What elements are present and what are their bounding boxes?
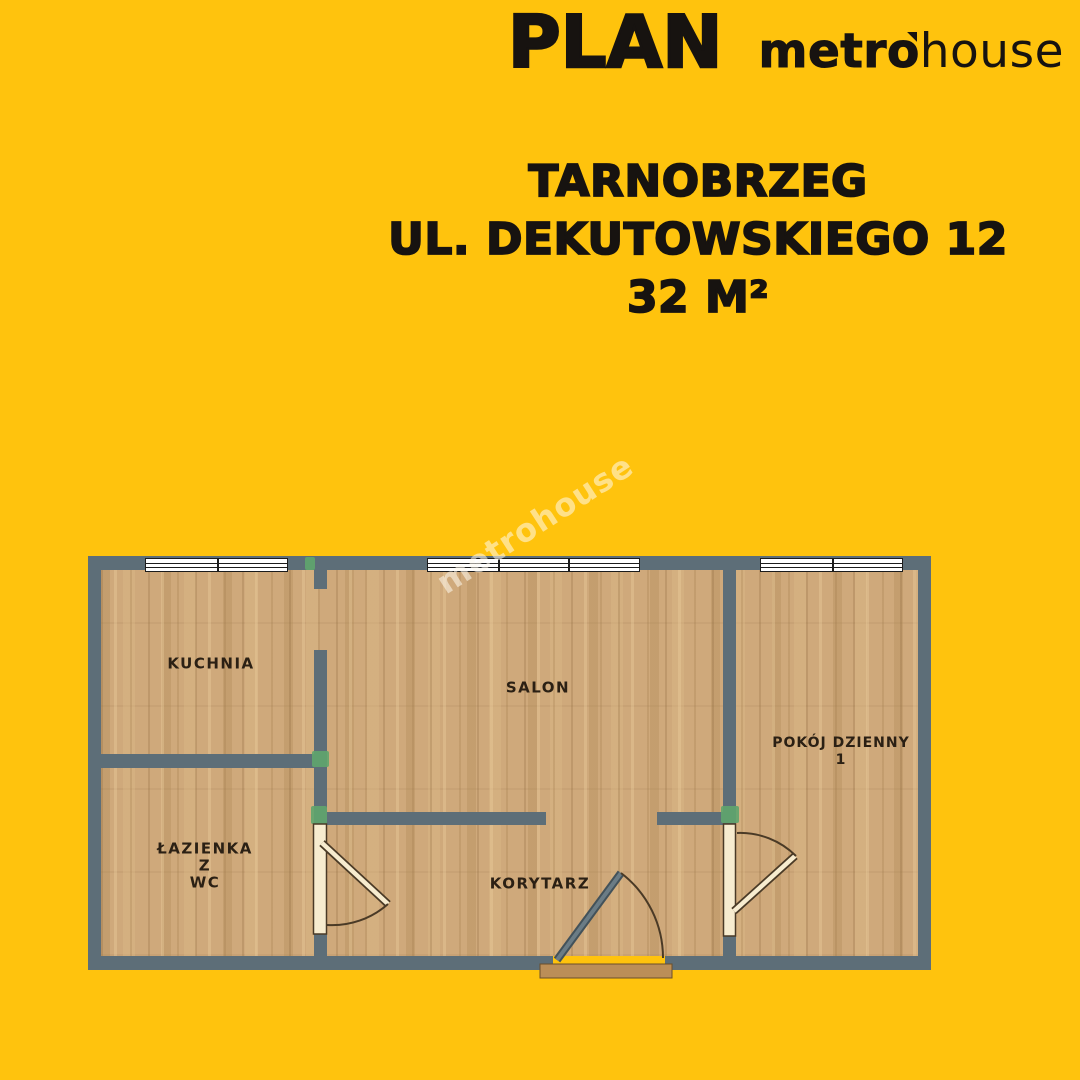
wall-bathroom-corridor-lower xyxy=(314,934,327,958)
lazienka-line2: Z xyxy=(157,858,253,875)
wall-kitchen-bathroom xyxy=(101,754,314,768)
window-divider xyxy=(832,559,834,571)
wall-outer-bottom-right xyxy=(665,956,931,970)
wall-kitchen-salon xyxy=(314,650,327,824)
junction-mark xyxy=(721,806,739,823)
pokoj-label-number: 1 xyxy=(772,752,909,769)
lazienka-line1: ŁAZIENKA xyxy=(157,841,253,858)
junction-mark xyxy=(311,806,327,824)
lazienka-line3: WC xyxy=(157,875,253,892)
wall-salon-corridor-left xyxy=(327,812,546,825)
wall-outer-right xyxy=(918,556,931,970)
room-label-pokoj-dzienny: POKÓJ DZIENNY 1 xyxy=(772,735,909,769)
room-label-korytarz: KORYTARZ xyxy=(490,876,590,893)
wall-outer-left xyxy=(88,556,101,970)
wall-outer-bottom-left xyxy=(88,956,553,970)
window-divider xyxy=(217,559,219,571)
junction-mark xyxy=(305,557,315,570)
wall-pokoj-lower xyxy=(723,936,736,958)
junction-mark xyxy=(312,751,329,767)
wall-kitchen-salon-stub xyxy=(314,568,327,589)
room-label-lazienka: ŁAZIENKA Z WC xyxy=(157,841,253,892)
wall-salon-corridor-right xyxy=(657,812,723,825)
window-divider xyxy=(568,559,570,571)
window-pokoj xyxy=(760,558,903,572)
pokoj-label-line1: POKÓJ DZIENNY xyxy=(772,735,909,752)
wall-salon-pokoj xyxy=(723,568,736,824)
entrance-threshold xyxy=(540,964,672,978)
window-kitchen xyxy=(145,558,288,572)
room-label-salon: SALON xyxy=(506,680,570,697)
room-label-kuchnia: KUCHNIA xyxy=(167,656,254,673)
poster: PLAN metr o house TARNOBRZEG UL. DEKUTOW… xyxy=(0,0,1080,1080)
